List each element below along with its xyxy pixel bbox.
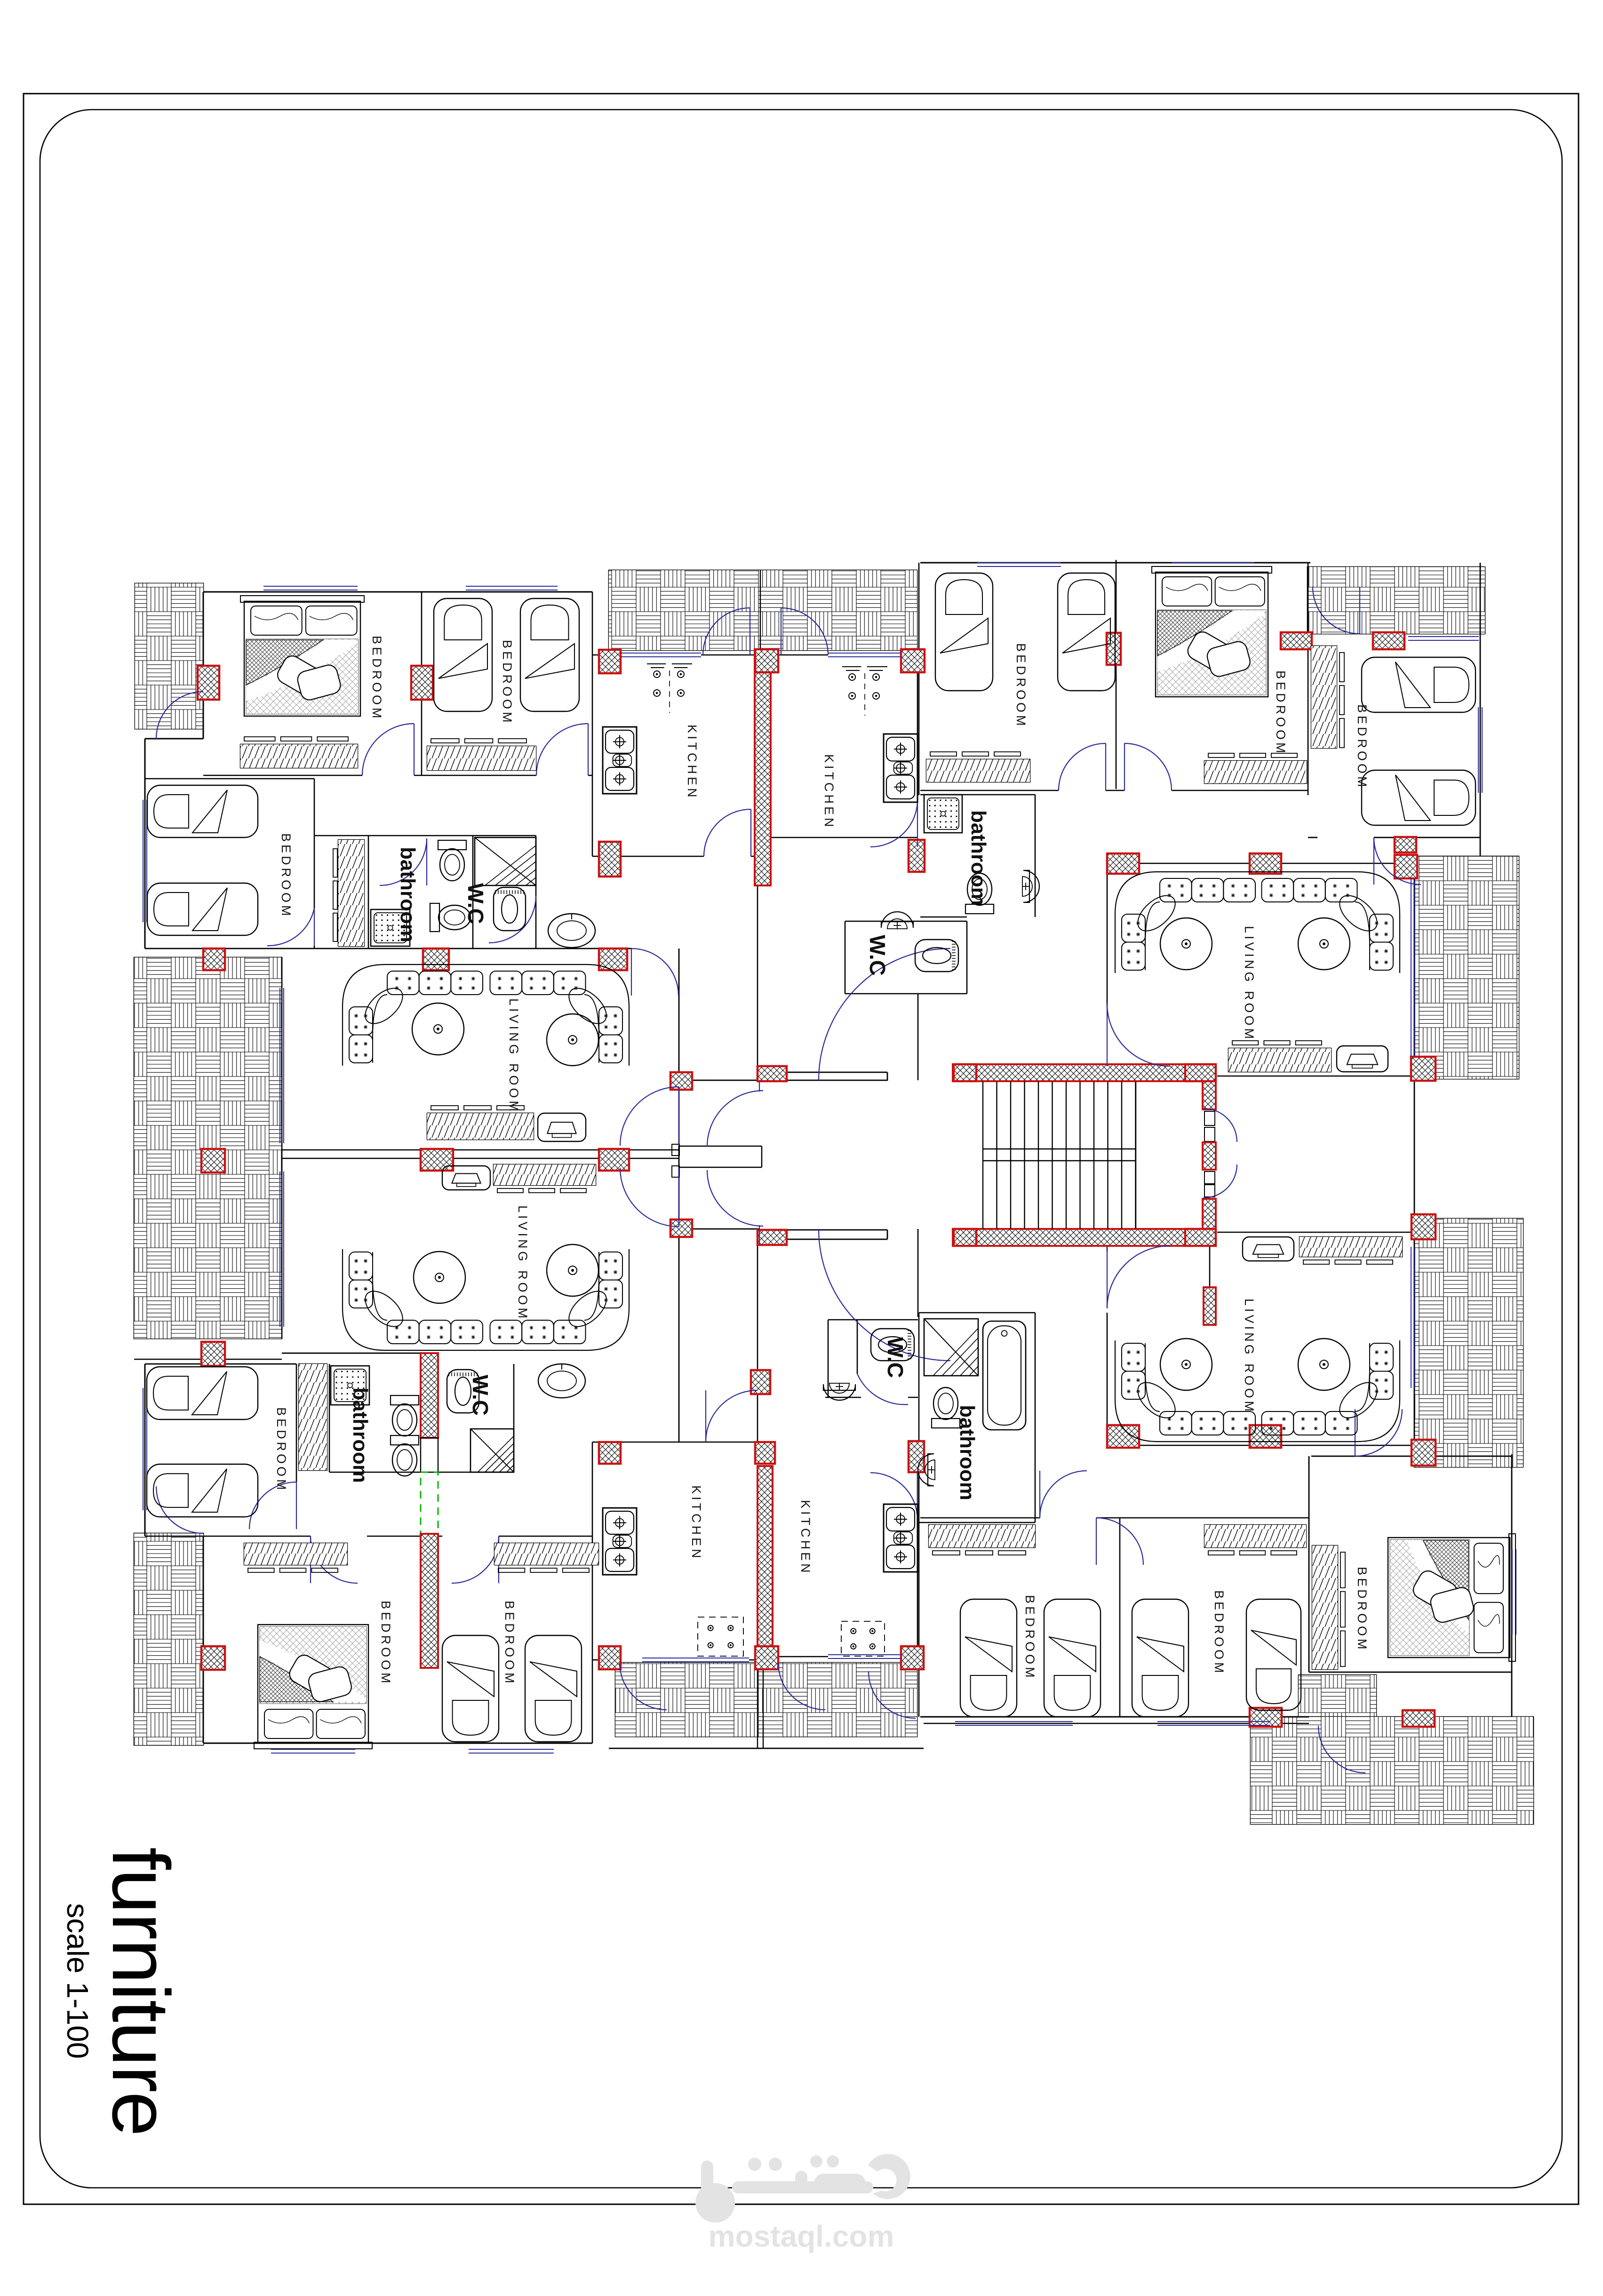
svg-text:BEDROOM: BEDROOM [1014,643,1028,729]
svg-text:W.C: W.C [865,935,890,976]
svg-text:bathroom: bathroom [349,1387,372,1483]
svg-text:BEDROOM: BEDROOM [274,1407,288,1493]
svg-text:KITCHEN: KITCHEN [689,1485,703,1561]
svg-text:BEDROOM: BEDROOM [1355,1567,1369,1652]
svg-text:BEDROOM: BEDROOM [370,636,384,721]
svg-text:W.C: W.C [463,883,488,924]
svg-text:BEDROOM: BEDROOM [1355,704,1369,790]
svg-text:BEDROOM: BEDROOM [379,1601,393,1686]
svg-text:KITCHEN: KITCHEN [685,725,699,800]
svg-text:BEDROOM: BEDROOM [500,640,514,725]
svg-text:BEDROOM: BEDROOM [502,1601,517,1686]
svg-text:furniture: furniture [96,1847,186,2136]
svg-text:bathroom: bathroom [956,1405,979,1500]
svg-text:W.C: W.C [883,1337,908,1378]
svg-text:LIVING ROOM: LIVING ROOM [1242,926,1256,1042]
svg-text:BEDROOM: BEDROOM [279,833,293,919]
svg-text:KITCHEN: KITCHEN [822,754,836,830]
svg-text:LIVING ROOM: LIVING ROOM [507,998,521,1114]
svg-text:BEDROOM: BEDROOM [1274,670,1288,756]
svg-text:scale 1-100: scale 1-100 [61,1903,95,2059]
svg-text:LIVING ROOM: LIVING ROOM [516,1205,530,1321]
svg-text:KITCHEN: KITCHEN [798,1500,813,1576]
svg-text:BEDROOM: BEDROOM [1023,1595,1037,1681]
svg-text:LIVING ROOM: LIVING ROOM [1242,1299,1256,1414]
svg-text:W.C: W.C [468,1375,493,1416]
svg-text:BEDROOM: BEDROOM [1212,1590,1226,1676]
svg-text:bathroom: bathroom [396,847,419,942]
svg-text:bathroom: bathroom [967,810,990,906]
svg-text:mostaql.com: mostaql.com [709,2219,894,2253]
